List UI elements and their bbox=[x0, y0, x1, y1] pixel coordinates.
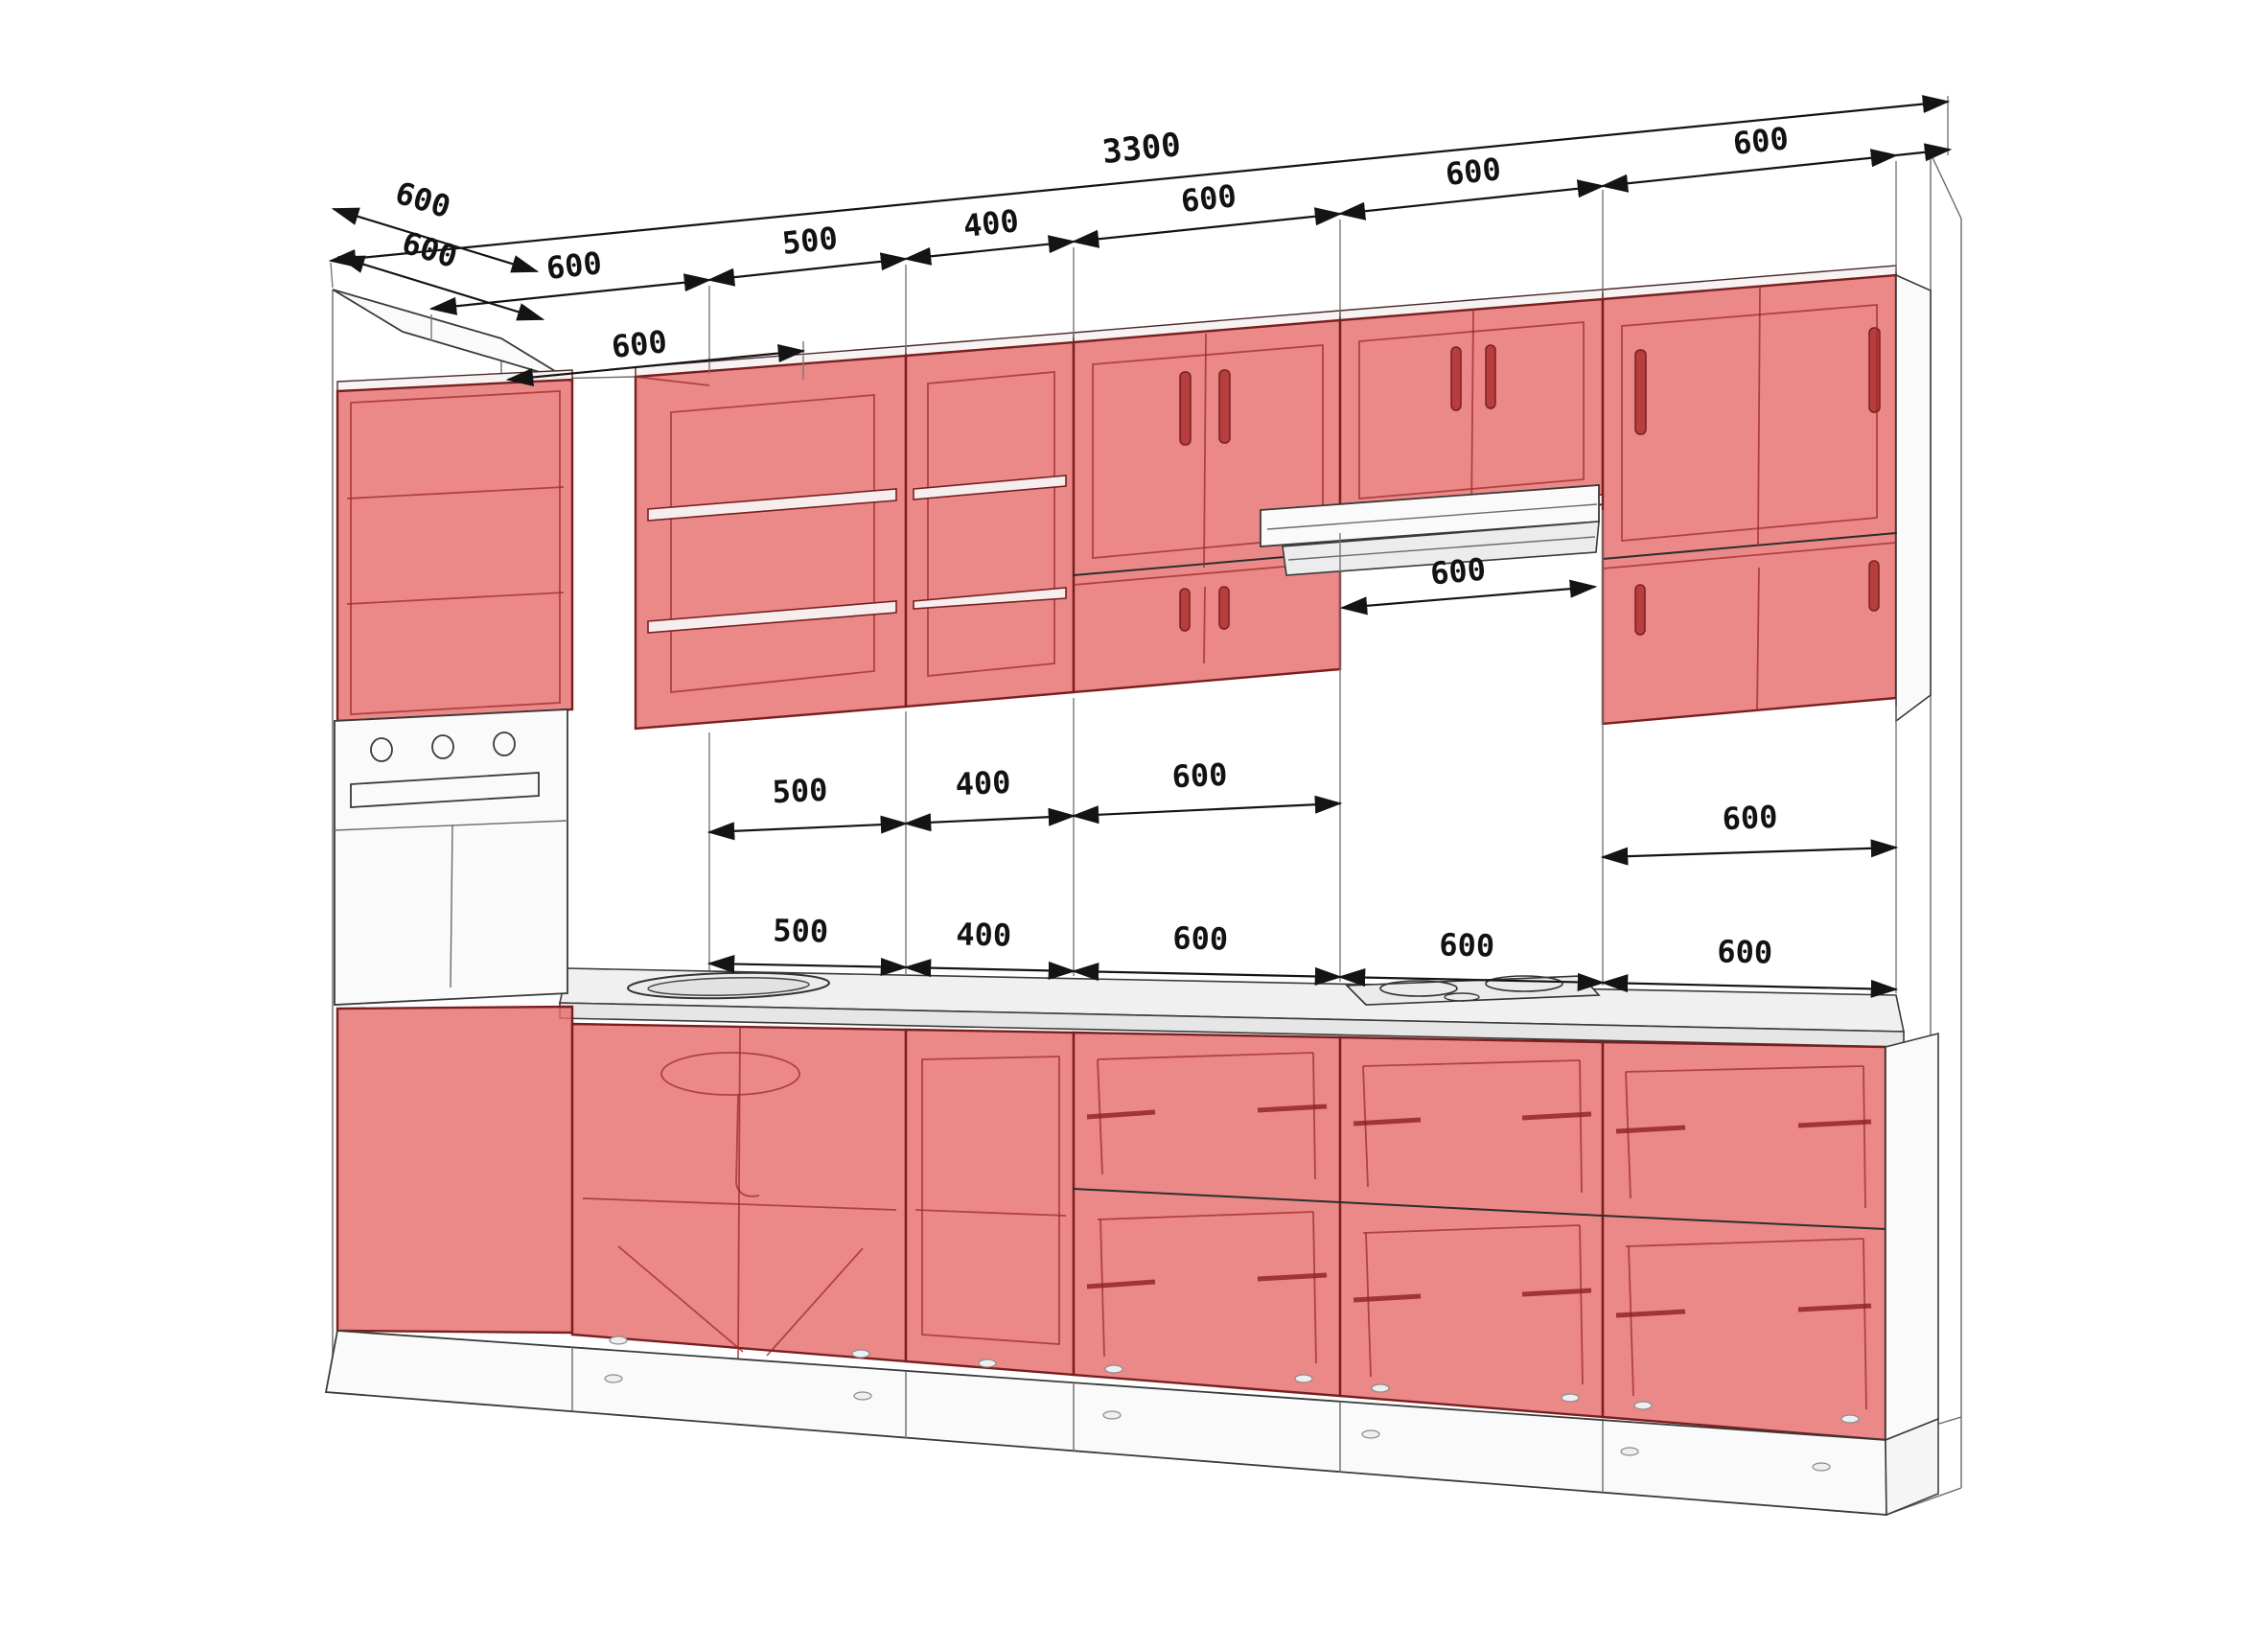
wall-cabinet-500-open bbox=[636, 346, 906, 729]
dim-bottom-2: 400 bbox=[956, 916, 1012, 953]
door-handle bbox=[1869, 328, 1880, 412]
tall-cabinet-base bbox=[337, 1007, 572, 1333]
dim-bottom-1: 500 bbox=[773, 912, 829, 949]
door-handle bbox=[1219, 587, 1229, 629]
dim-bottom-3: 600 bbox=[1172, 919, 1229, 957]
base-cabinet-drawers-2 bbox=[1340, 1037, 1603, 1417]
dim-tall-top: 600 bbox=[610, 323, 668, 365]
wall-cabinet-400-open bbox=[906, 333, 1074, 707]
door-handle bbox=[1451, 347, 1461, 410]
wall-cabinet-600-doors bbox=[1074, 311, 1340, 692]
kitchen-dimension-drawing: 3300 600 600 600 500 400 600 600 600 600… bbox=[0, 0, 2268, 1626]
base-end-panel bbox=[1886, 1034, 1938, 1440]
base-cabinet-drawers-1 bbox=[1074, 1033, 1340, 1396]
oven-knob bbox=[371, 738, 392, 761]
base-cabinet-sink bbox=[572, 1024, 906, 1361]
base-cabinet-400 bbox=[906, 1030, 1074, 1375]
wall-cabinet-600-right bbox=[1603, 266, 1931, 724]
dim-depth-2: 600 bbox=[398, 224, 461, 275]
dim-top-5: 600 bbox=[1444, 151, 1502, 193]
oven bbox=[335, 709, 567, 1005]
dim-top-4: 600 bbox=[1179, 177, 1238, 220]
door-handle bbox=[1180, 372, 1191, 445]
dim-depth-1: 600 bbox=[391, 174, 454, 225]
base-cabinet-drawers-3 bbox=[1603, 1042, 1886, 1440]
dim-mid-right: 600 bbox=[1722, 799, 1778, 837]
tall-cabinet-top-surface bbox=[333, 290, 572, 382]
oven-knob bbox=[494, 732, 515, 755]
dim-overall-width: 3300 bbox=[1100, 126, 1182, 172]
end-panel bbox=[1896, 275, 1931, 721]
door-handle bbox=[1635, 585, 1645, 635]
door-handle bbox=[1219, 370, 1230, 443]
dim-top-3: 400 bbox=[961, 202, 1020, 244]
wall-cabinets bbox=[636, 266, 1931, 729]
dim-bottom-5: 600 bbox=[1717, 933, 1773, 970]
tall-cabinet bbox=[335, 370, 572, 1333]
door-handle bbox=[1180, 589, 1190, 631]
dim-mid-3: 600 bbox=[1171, 756, 1228, 796]
door-handle bbox=[1635, 350, 1646, 434]
dim-mid-1: 500 bbox=[772, 772, 828, 811]
dim-bottom-4: 600 bbox=[1439, 926, 1495, 964]
door-handle bbox=[1486, 345, 1495, 408]
dim-top-6: 600 bbox=[1731, 120, 1790, 162]
dim-top-1: 600 bbox=[544, 244, 603, 287]
dim-hood-width: 600 bbox=[1429, 551, 1488, 592]
tall-cabinet-upper-door bbox=[337, 380, 572, 721]
door-handle bbox=[1869, 561, 1879, 611]
oven-knob bbox=[432, 735, 453, 758]
drawing-canvas: 3300 600 600 600 500 400 600 600 600 600… bbox=[0, 0, 2268, 1626]
dim-top-2: 500 bbox=[780, 220, 839, 262]
dim-mid-2: 400 bbox=[955, 764, 1011, 803]
